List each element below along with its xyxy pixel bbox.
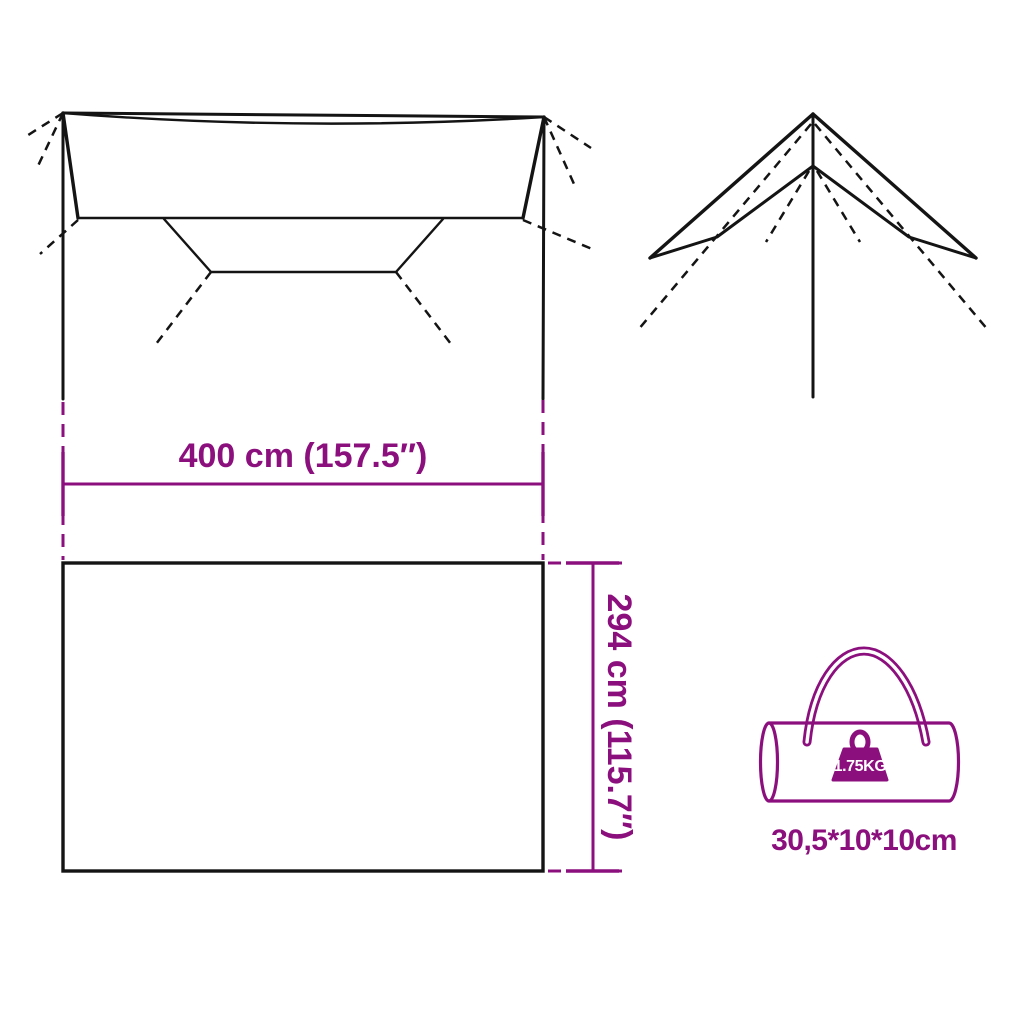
guy-line [25, 113, 63, 137]
tarp-wing-inner-right [813, 166, 976, 258]
width-dimension: 400 cm (157.5″) [63, 400, 543, 560]
bag-end-cap [761, 723, 778, 801]
weight-label: 1.75KG [834, 758, 887, 775]
tarp-front-panel [164, 219, 443, 272]
tarp-wing-outer-left [650, 114, 813, 258]
tarp-right-edge [523, 117, 544, 218]
guy-line [156, 272, 211, 344]
width-dimension-label: 400 cm (157.5″) [179, 437, 428, 475]
tarp-diagram-svg: 400 cm (157.5″) 294 cm (115.7″) 1.75KG 3… [0, 0, 1024, 1024]
tarp-right-side-line [543, 117, 544, 399]
guy-line [817, 171, 860, 242]
tarp-top-view-drawing [25, 113, 592, 399]
product-diagram-canvas: 400 cm (157.5″) 294 cm (115.7″) 1.75KG 3… [0, 0, 1024, 1024]
carry-bag: 1.75KG 30,5*10*10cm [761, 651, 959, 857]
guy-line [396, 272, 451, 344]
tarp-wing-outer-right [813, 114, 976, 258]
height-dimension-label: 294 cm (115.7″) [600, 594, 638, 841]
guy-line [40, 220, 78, 254]
tarp-flat-rectangle [63, 563, 543, 871]
tarp-left-edge [63, 113, 78, 218]
tarp-side-view-drawing [638, 114, 988, 397]
guy-line [37, 113, 63, 168]
tarp-ridge-line [63, 113, 544, 117]
guy-line [523, 220, 592, 249]
guy-line [815, 124, 988, 330]
height-dimension: 294 cm (115.7″) [548, 563, 638, 871]
bag-size-label: 30,5*10*10cm [771, 824, 957, 857]
guy-line [766, 171, 809, 242]
tarp-wing-inner-left [650, 166, 813, 258]
guy-line [638, 124, 811, 330]
bag-handle [807, 651, 926, 742]
